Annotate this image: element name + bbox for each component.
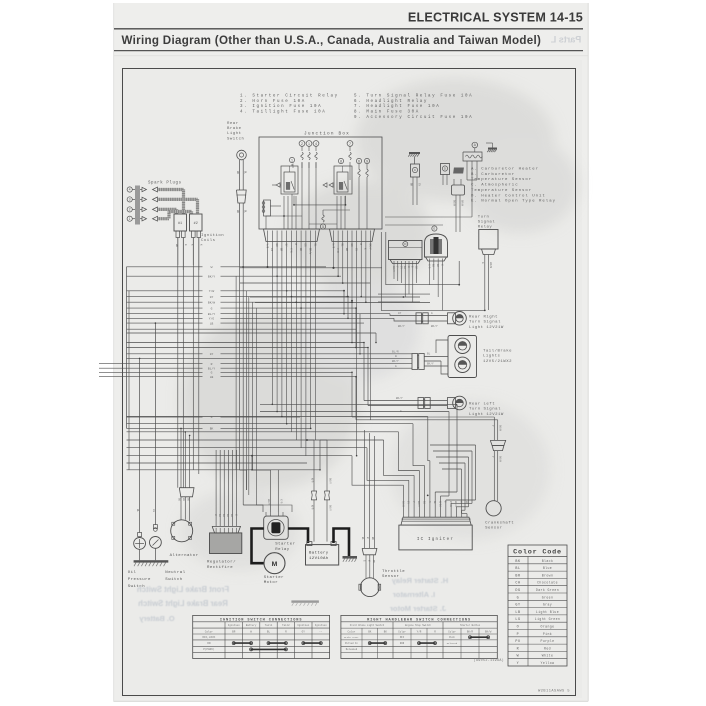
- svg-text:E. Normal Open Type Relay: E. Normal Open Type Relay: [471, 199, 556, 204]
- svg-text:I. Alternator: I. Alternator: [393, 590, 435, 599]
- svg-text:BL: BL: [244, 171, 247, 175]
- svg-text:Dark Green: Dark Green: [536, 588, 559, 592]
- svg-text:2. Horn Fuse 10A: 2. Horn Fuse 10A: [240, 100, 306, 104]
- svg-text:3: 3: [129, 198, 131, 202]
- svg-text:G: G: [517, 596, 520, 600]
- svg-text:Red: Red: [544, 646, 551, 650]
- svg-text:Relay: Relay: [478, 225, 493, 230]
- svg-text:Turn Signal: Turn Signal: [469, 320, 501, 325]
- svg-text:Light: Light: [227, 131, 242, 136]
- svg-text:BL/R: BL/R: [392, 349, 399, 353]
- svg-text:BR: BR: [515, 574, 520, 578]
- svg-text:BK/Y: BK/Y: [208, 274, 215, 278]
- svg-text:Color: Color: [398, 629, 406, 633]
- svg-text:BL: BL: [313, 244, 316, 248]
- svg-text:Released: Released: [447, 642, 458, 645]
- svg-text:LB: LB: [515, 611, 520, 615]
- svg-text:ON: ON: [207, 642, 211, 645]
- svg-text:P: P: [517, 633, 520, 637]
- svg-text:D. Heater Control Unit: D. Heater Control Unit: [471, 193, 546, 198]
- svg-text:W/R: W/R: [310, 478, 313, 483]
- svg-text:GY/W: GY/W: [449, 501, 452, 507]
- svg-text:2: 2: [301, 142, 303, 146]
- svg-text:IC Igniter: IC Igniter: [417, 537, 454, 542]
- svg-text:Tail2: Tail2: [282, 624, 290, 627]
- svg-text:BK: BK: [350, 244, 353, 248]
- svg-text:BK: BK: [299, 248, 302, 252]
- svg-text:W/R: W/R: [310, 505, 313, 510]
- svg-text:Light Blue: Light Blue: [536, 610, 559, 614]
- svg-text:RUN: RUN: [400, 642, 405, 645]
- svg-text:BL/Y: BL/Y: [208, 312, 215, 316]
- svg-text:BK/W: BK/W: [499, 425, 502, 431]
- svg-text:Starter: Starter: [275, 542, 295, 547]
- svg-text:ELECTRICAL SYSTEM 14-15: ELECTRICAL SYSTEM 14-15: [408, 10, 583, 24]
- svg-text:12V5/21WX2: 12V5/21WX2: [483, 359, 512, 364]
- svg-text:G: G: [211, 371, 213, 374]
- svg-text:GY: GY: [302, 630, 306, 633]
- svg-text:BK/W: BK/W: [485, 629, 492, 633]
- svg-text:Y/G: Y/G: [209, 316, 215, 320]
- svg-text:Gray: Gray: [543, 603, 552, 607]
- svg-text:GY: GY: [285, 244, 288, 248]
- svg-text:GY: GY: [210, 296, 214, 299]
- svg-text:BK: BK: [236, 210, 239, 214]
- svg-text:Starter: Starter: [264, 575, 284, 580]
- svg-text:BK: BK: [236, 171, 239, 175]
- svg-text:BK/Y: BK/Y: [431, 324, 438, 328]
- svg-text:BR: BR: [232, 630, 236, 633]
- svg-text:LG: LG: [152, 509, 155, 513]
- svg-text:Color: Color: [205, 629, 213, 633]
- svg-text:Ignition: Ignition: [297, 624, 310, 627]
- svg-text:BK/Y: BK/Y: [329, 478, 332, 484]
- svg-text:Y/W: Y/W: [209, 289, 215, 293]
- svg-text:BR: BR: [345, 248, 348, 252]
- svg-text:Turn Signal: Turn Signal: [469, 407, 501, 412]
- svg-text:Orange: Orange: [541, 624, 555, 628]
- svg-text:7. Headlight Fuse 10A: 7. Headlight Fuse 10A: [354, 104, 440, 109]
- svg-text:Turn: Turn: [478, 215, 490, 220]
- svg-text:Wiring Diagram (Other than U.S: Wiring Diagram (Other than U.S.A., Canad…: [122, 34, 542, 47]
- svg-text:4: 4: [129, 188, 131, 192]
- svg-text:BL: BL: [267, 630, 271, 633]
- svg-text:Sensor: Sensor: [485, 526, 503, 531]
- svg-text:W/BK: W/BK: [438, 501, 441, 507]
- svg-text:BK/Y: BK/Y: [396, 396, 403, 400]
- svg-text:W2B11ASAWS 5: W2B11ASAWS 5: [538, 690, 570, 694]
- svg-text:Pulled In: Pulled In: [345, 642, 358, 645]
- svg-text:5. Turn Signal Relay Fuse 10A: 5. Turn Signal Relay Fuse 10A: [354, 94, 473, 99]
- svg-text:7: 7: [349, 142, 351, 146]
- svg-text:P(PARK): P(PARK): [203, 647, 215, 651]
- svg-text:GY: GY: [515, 604, 520, 608]
- svg-text:LB: LB: [210, 322, 214, 325]
- svg-text:Rectifire: Rectifire: [207, 565, 233, 570]
- svg-text:W: W: [517, 655, 520, 659]
- svg-text:CH: CH: [515, 582, 520, 586]
- svg-text:Temperature Sensor: Temperature Sensor: [471, 188, 532, 193]
- svg-text:Relay: Relay: [275, 547, 290, 552]
- svg-text:Brake Lever: Brake Lever: [344, 636, 359, 639]
- svg-text:Junction Box: Junction Box: [304, 132, 350, 137]
- svg-text:#1: #1: [178, 222, 182, 226]
- svg-text:BK/Y: BK/Y: [392, 266, 395, 272]
- svg-text:Push: Push: [449, 636, 455, 639]
- svg-text:Rear Brake Light Switch: Rear Brake Light Switch: [138, 599, 228, 608]
- svg-text:Rear: Rear: [227, 121, 239, 126]
- svg-text:BK/Y: BK/Y: [398, 324, 405, 328]
- svg-text:GY: GY: [210, 353, 214, 356]
- svg-text:Rear Left: Rear Left: [469, 402, 495, 407]
- svg-text:BL: BL: [515, 567, 520, 571]
- svg-text:1: 1: [291, 158, 293, 162]
- svg-text:BK/W: BK/W: [453, 200, 456, 206]
- svg-text:OFF,LOCK: OFF,LOCK: [202, 636, 215, 639]
- svg-text:Y/R: Y/R: [417, 629, 422, 633]
- svg-text:M: M: [272, 561, 278, 568]
- svg-text:1. Starter Circuit Relay: 1. Starter Circuit Relay: [240, 94, 339, 99]
- svg-text:1: 1: [308, 142, 310, 146]
- svg-text:3. Ignition Fuse 10A: 3. Ignition Fuse 10A: [240, 104, 322, 109]
- svg-text:Crankshaft: Crankshaft: [485, 521, 514, 526]
- svg-text:Ignition: Ignition: [315, 624, 328, 627]
- svg-text:Tail1: Tail1: [265, 624, 273, 627]
- svg-text:BK/Y: BK/Y: [267, 499, 270, 505]
- svg-text:Y/R: Y/R: [280, 499, 283, 504]
- svg-text:BK/Y: BK/Y: [329, 505, 332, 511]
- svg-text:C. Atmospheric: C. Atmospheric: [471, 183, 519, 188]
- svg-text:Throttle: Throttle: [382, 569, 405, 574]
- svg-text:4. Taillight Fuse 10A: 4. Taillight Fuse 10A: [240, 110, 326, 115]
- svg-text:BK: BK: [515, 560, 521, 564]
- svg-text:6: 6: [358, 159, 360, 163]
- svg-text:Brake: Brake: [227, 126, 242, 131]
- svg-text:BK/Y: BK/Y: [417, 501, 420, 507]
- svg-text:Spark Plugs: Spark Plugs: [148, 181, 182, 186]
- svg-text:Chocolate: Chocolate: [537, 581, 558, 585]
- svg-text:Regulator/: Regulator/: [207, 560, 236, 565]
- svg-text:Temperature Sensor: Temperature Sensor: [471, 177, 532, 182]
- svg-text:Black: Black: [542, 559, 554, 563]
- svg-text:BK/W: BK/W: [401, 501, 404, 507]
- svg-text:Battery: Battery: [309, 551, 329, 556]
- svg-text:5: 5: [322, 225, 324, 229]
- svg-text:Pink: Pink: [543, 632, 552, 636]
- svg-text:Alternator: Alternator: [170, 553, 199, 558]
- svg-text:LG: LG: [270, 248, 273, 252]
- svg-text:Released: Released: [346, 648, 358, 651]
- svg-text:Coils: Coils: [201, 238, 216, 243]
- svg-text:BK: BK: [210, 428, 214, 431]
- svg-text:Front Brake Light Switch: Front Brake Light Switch: [137, 585, 230, 594]
- svg-text:BR/W: BR/W: [489, 262, 492, 269]
- svg-text:9. Accessory Circuit Fuse 10A: 9. Accessory Circuit Fuse 10A: [354, 115, 473, 120]
- svg-text:9: 9: [366, 159, 368, 163]
- svg-text:BL: BL: [341, 244, 344, 248]
- svg-text:2: 2: [129, 208, 131, 212]
- svg-text:BK/R: BK/R: [467, 629, 474, 633]
- svg-text:Light Green: Light Green: [535, 617, 560, 621]
- svg-text:O: O: [517, 625, 520, 629]
- svg-text:GY: GY: [398, 312, 402, 315]
- svg-text:LB: LB: [210, 376, 214, 379]
- svg-text:BK: BK: [410, 183, 413, 187]
- svg-text:BK/Y: BK/Y: [392, 359, 399, 363]
- svg-text:A. Carburetor Heater: A. Carburetor Heater: [471, 167, 539, 172]
- svg-text:Brown: Brown: [542, 573, 554, 577]
- svg-text:#2: #2: [194, 222, 198, 226]
- svg-text:GY: GY: [418, 183, 421, 187]
- svg-text:Color: Color: [448, 629, 456, 633]
- svg-text:--: --: [319, 630, 323, 633]
- svg-text:Signal: Signal: [478, 220, 496, 225]
- svg-text:8: 8: [340, 159, 342, 163]
- svg-text:Motor: Motor: [264, 580, 279, 585]
- svg-text:J. Starter Motor: J. Starter Motor: [390, 604, 446, 613]
- svg-text:H. Starter Relay: H. Starter Relay: [391, 576, 448, 585]
- svg-text:(99052-1199A): (99052-1199A): [474, 658, 504, 663]
- svg-text:BK: BK: [368, 630, 372, 633]
- svg-text:Ignition: Ignition: [228, 624, 241, 627]
- svg-text:4: 4: [315, 142, 317, 146]
- svg-text:6. Headlight Relay: 6. Headlight Relay: [354, 99, 428, 104]
- svg-text:Light 12V21W: Light 12V21W: [469, 412, 504, 417]
- svg-text:Y: Y: [517, 662, 520, 666]
- svg-text:E: E: [433, 227, 435, 231]
- svg-text:DG: DG: [304, 244, 307, 248]
- svg-text:BK/W: BK/W: [208, 300, 215, 304]
- svg-text:R: R: [517, 647, 520, 651]
- svg-text:BL: BL: [244, 210, 247, 214]
- svg-text:Lights: Lights: [483, 354, 501, 359]
- svg-text:Pressure: Pressure: [128, 577, 151, 582]
- svg-text:Blue: Blue: [543, 566, 552, 570]
- svg-text:Engine Stop Switch: Engine Stop Switch: [405, 624, 431, 627]
- svg-text:BR/W: BR/W: [461, 200, 464, 206]
- svg-text:BR: BR: [280, 248, 283, 252]
- svg-text:Switch: Switch: [227, 136, 245, 141]
- svg-text:Parts L: Parts L: [550, 35, 581, 45]
- svg-text:BL: BL: [136, 509, 139, 513]
- svg-text:1: 1: [129, 217, 131, 221]
- svg-text:Tail/Brake: Tail/Brake: [483, 349, 512, 354]
- svg-text:12V10Ah: 12V10Ah: [309, 556, 329, 561]
- svg-text:Front Brake Light Switch: Front Brake Light Switch: [350, 624, 385, 627]
- svg-text:O. Battery: O. Battery: [138, 614, 174, 623]
- svg-text:PU: PU: [515, 640, 520, 644]
- svg-text:Rear Right: Rear Right: [469, 315, 498, 320]
- svg-text:Green: Green: [542, 595, 554, 599]
- svg-text:BK: BK: [275, 244, 278, 248]
- svg-text:BK/Y: BK/Y: [427, 362, 434, 366]
- svg-text:Color: Color: [348, 629, 356, 633]
- svg-text:Y/R: Y/R: [427, 264, 430, 269]
- svg-text:LG: LG: [515, 618, 520, 622]
- svg-text:BK/R: BK/R: [454, 501, 457, 507]
- svg-text:Color Code: Color Code: [513, 549, 562, 557]
- svg-text:BL: BL: [427, 353, 431, 356]
- svg-text:DG: DG: [515, 589, 520, 593]
- svg-text:BK: BK: [384, 630, 388, 633]
- svg-text:Yellow: Yellow: [541, 661, 555, 665]
- svg-text:OFF: OFF: [400, 636, 405, 639]
- svg-text:Neutral: Neutral: [165, 570, 185, 575]
- svg-text:GY: GY: [354, 248, 357, 252]
- svg-text:White: White: [542, 654, 554, 658]
- svg-text:Switch: Switch: [165, 577, 183, 582]
- svg-text:IGNITION SWITCH CONNECTIONS: IGNITION SWITCH CONNECTIONS: [220, 618, 303, 622]
- svg-text:Starter Button: Starter Button: [460, 624, 481, 627]
- svg-text:Purple: Purple: [541, 639, 555, 643]
- svg-text:Ignition: Ignition: [201, 233, 224, 238]
- svg-text:BK/W: BK/W: [499, 456, 502, 462]
- svg-text:Light 12V21W: Light 12V21W: [469, 325, 504, 330]
- svg-text:Battery: Battery: [246, 624, 257, 627]
- svg-text:B. Carburetor: B. Carburetor: [471, 172, 515, 177]
- svg-text:G: G: [211, 307, 213, 310]
- svg-text:8. Main Fuse 30A: 8. Main Fuse 30A: [354, 110, 420, 115]
- svg-text:BL/Y: BL/Y: [208, 366, 215, 370]
- svg-text:R: R: [211, 363, 213, 366]
- svg-text:W: W: [211, 266, 213, 269]
- svg-text:Oil: Oil: [128, 570, 137, 575]
